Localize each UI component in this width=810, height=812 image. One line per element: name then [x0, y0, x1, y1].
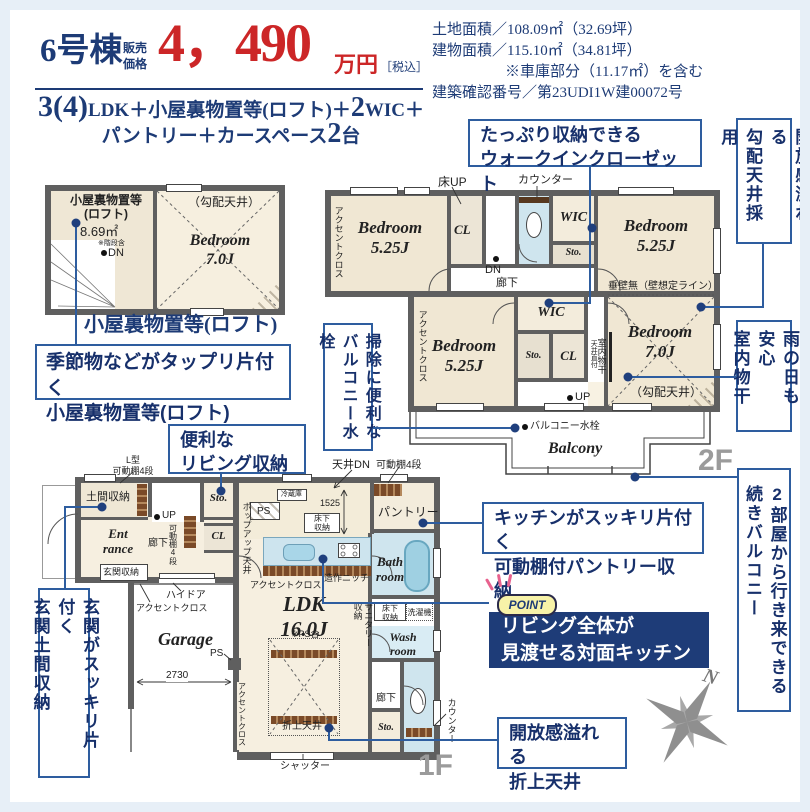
f2-stairs-dn	[486, 196, 515, 264]
f2-bedroom-tr-label: Bedroom 5.25J	[610, 216, 702, 256]
f1-hall1-label: 廊下	[148, 538, 168, 550]
spark-icon-1	[485, 578, 494, 591]
loft-wall-right	[279, 185, 285, 315]
f1-tenjo-dn-label: 天井DN	[332, 459, 370, 472]
f1-shelf4-side-label: 可動棚4段	[168, 524, 177, 568]
f1-cl-label: CL	[204, 530, 233, 543]
f1-dim2730-label: 2730	[166, 670, 188, 682]
f1-pantry-label: パントリー	[378, 505, 439, 519]
callout-loft: 季節物などがタップリ片付く 小屋裏物置等(ロフト)	[35, 344, 291, 400]
point-box: リビング全体が 見渡せる対面キッチン	[489, 612, 709, 668]
f1-wash-label: Wash room	[380, 630, 426, 658]
loft-window-top	[166, 184, 202, 192]
f1-p8	[370, 529, 434, 533]
f1-toilet-counter	[406, 728, 432, 737]
callout-tap: 掃除に便利な バルコニー水栓	[323, 323, 373, 451]
f2-p12	[518, 378, 588, 382]
callout-pantry: キッチンがスッキリ片付く 可動棚付パントリー収納	[482, 502, 704, 554]
leader-balcony2-h	[635, 476, 737, 478]
f1-dim1525-label: 1525	[320, 498, 340, 509]
price-tax: ［税込］	[380, 60, 428, 74]
f2-monohoshi-label: 室内物干	[596, 338, 607, 388]
f2-p3	[515, 196, 519, 266]
site-info-line2: 建物面積／115.10㎡（34.81坪）	[432, 43, 641, 61]
f1-wall-left	[75, 477, 81, 583]
f1-ps2-box	[228, 658, 241, 670]
leader-dot-loft	[72, 219, 81, 228]
f2-floor-up-label: 床UP	[438, 175, 467, 189]
f1-shelf4-top-label: 可動棚4段	[376, 460, 422, 472]
callout-balcony2: 2部屋から行き来できる 続きバルコニー	[737, 468, 791, 712]
loft-storage-label: 小屋裏物置等 (ロフト)	[58, 193, 154, 221]
f1-sanitary-label: サニタリー 収納	[352, 602, 373, 660]
f2-bedroom-tl-label: Bedroom 5.25J	[344, 218, 436, 258]
f2-floor-label: 2F	[698, 443, 733, 478]
f1-p13	[372, 708, 402, 712]
building-number: 6号棟	[40, 32, 123, 71]
loft-sloped-ceiling-label: （勾配天井）	[188, 195, 260, 209]
f1-oriage-label: 折上天井	[282, 721, 322, 733]
f2-toilet-bowl	[526, 212, 542, 238]
f2-window3	[618, 187, 674, 195]
f1-hidoor-label: ハイドア	[166, 590, 206, 602]
f2-toilet-counter	[519, 197, 549, 203]
loft-stairs-fan	[51, 240, 75, 309]
f1-shutter-window	[270, 752, 334, 760]
f1-up-marker	[154, 514, 160, 520]
leader-sloped-v	[762, 244, 764, 308]
f2-sto1-label: Sto.	[553, 247, 594, 259]
f1-p6	[204, 550, 233, 553]
callout-oriage: 開放感溢れる 折上天井	[497, 717, 627, 769]
f1-side-shelf	[184, 516, 196, 548]
loft-dn-marker	[101, 250, 107, 256]
f2-counter-label: カウンター	[518, 174, 573, 187]
f2-sloped-ceiling-label: （勾配天井）	[630, 385, 702, 399]
f1-ps1-label: PS	[257, 506, 270, 518]
f1-wall-garage-left	[128, 583, 134, 709]
f2-p5	[594, 196, 598, 291]
f2-p7	[553, 241, 594, 245]
loft-wall-top	[45, 185, 285, 191]
f1-window3	[380, 474, 408, 482]
loft-caption: 小屋裏物置等(ロフト)	[84, 314, 277, 338]
price-unit: 万円	[334, 52, 378, 78]
f2-wall-left-bot	[408, 291, 414, 412]
f1-hidoor-leaf	[159, 573, 215, 579]
f2-wic2-label: WIC	[518, 305, 584, 322]
f1-p10	[372, 595, 434, 599]
leader-dot-oriage	[325, 724, 334, 733]
f2-dn-marker	[493, 256, 499, 262]
f1-washer-label: 洗濯機	[406, 608, 433, 617]
callout-living-storage: 便利な リビング収納	[168, 424, 306, 474]
plan-line2: パントリー＋カースペース2台	[36, 118, 426, 150]
f2-window1	[350, 187, 398, 195]
f2-window6	[436, 403, 484, 411]
f2-up-label: UP	[575, 391, 590, 404]
leader-dot-point	[319, 555, 328, 564]
f1-garage-label: Garage	[158, 629, 213, 650]
f2-cl1-label: CL	[454, 222, 471, 237]
f1-window6	[433, 700, 441, 726]
plan-mid3: パントリー＋カースペース	[102, 121, 328, 148]
f2-p1	[447, 196, 451, 291]
f1-oriage-wood-top	[271, 650, 337, 658]
leader-genkan-v	[64, 506, 66, 588]
f1-underfloor2-label: 床下 収納	[374, 604, 406, 623]
f2-p6	[451, 264, 598, 268]
f1-sto2-label: Sto.	[372, 722, 400, 734]
f2-bedroom-br-label: Bedroom 7.0J	[614, 322, 706, 362]
f1-window4	[433, 548, 441, 578]
f2-cl2-label: CL	[553, 348, 584, 363]
loft-storage-area: 8.69㎡	[80, 224, 118, 239]
f2-tap-label: バルコニー水栓	[530, 421, 600, 433]
f1-garage-top-line	[134, 583, 233, 585]
f1-underfloor1-box: 床下 収納	[304, 513, 340, 533]
leader-wic-h	[549, 302, 591, 304]
f2-dn-label: DN	[485, 264, 501, 277]
callout-genkan: 玄関がスッキリ片付く 玄関土間収納	[38, 588, 90, 778]
f1-p5	[204, 523, 233, 526]
compass-rose-icon	[623, 658, 751, 786]
f1-p2	[81, 517, 148, 520]
leader-dot-wic1	[588, 224, 597, 233]
f1-ps-incl-label: ※PS含	[291, 629, 320, 640]
f1-accent2-label: アクセントクロス	[250, 580, 322, 591]
f2-up-marker	[567, 395, 573, 401]
leader-tap-h	[373, 427, 515, 429]
callout-wic: たっぷり収納できる ウォークインクローゼット	[468, 119, 702, 167]
f2-window7	[544, 403, 584, 411]
leader-genkan-h	[64, 506, 102, 508]
f2-monohoshi-pole	[609, 332, 612, 382]
leader-dot-living	[217, 487, 226, 496]
f1-p4	[204, 517, 233, 520]
f1-doma-label: 土間収納	[86, 491, 130, 504]
f1-floor-label: 1F	[418, 748, 453, 783]
f2-tap-marker	[522, 424, 528, 430]
site-info-line3: ※車庫部分（11.17㎡）を含む	[505, 64, 703, 82]
f1-pantry-shelf	[374, 484, 402, 496]
f2-wall-botleft	[325, 291, 414, 297]
f1-accent3-label: アクセントクロス	[237, 682, 246, 750]
callout-sloped-ceiling: 開放感溢れる 勾配天井採用	[736, 118, 792, 244]
f2-window2	[404, 187, 430, 195]
f2-p9	[584, 297, 588, 382]
compass-n-label: N	[700, 664, 721, 691]
leader-sloped-h	[701, 306, 764, 308]
leader-monohoshi-h	[628, 376, 736, 378]
f2-wall-left-top	[325, 190, 331, 297]
f1-hall2-label: 廊下	[376, 693, 396, 705]
f1-ps2-label: PS	[210, 648, 223, 660]
f2-hall-label: 廊下	[496, 277, 518, 290]
f1-up-label: UP	[162, 510, 176, 522]
price-label: 販売 価格	[123, 41, 147, 72]
f2-tarekabe-label: 垂壁無（壁想定ライン）	[608, 281, 718, 293]
leader-point-v	[322, 559, 324, 604]
f1-entrance-label: Ent rance	[92, 526, 144, 557]
leader-dot-wic2	[545, 299, 554, 308]
leader-oriage-h	[328, 739, 497, 741]
f1-p1	[148, 483, 152, 517]
loft-wall-left	[45, 185, 51, 315]
f1-popup-label: ポップアップ天井	[241, 502, 252, 588]
f2-window8	[612, 403, 652, 411]
leader-dot-genkan	[98, 503, 107, 512]
f2-balcony-label: Balcony	[548, 440, 602, 459]
f1-doma-shelf	[137, 484, 147, 516]
f2-hall-top	[451, 268, 596, 291]
site-info-line1: 土地面積／108.09㎡（32.69坪）	[432, 22, 642, 40]
f1-window5	[433, 630, 441, 652]
loft-bedroom-label: Bedroom 7.0J	[180, 232, 260, 270]
f1-fridge-label: 冷蔵庫	[281, 491, 302, 499]
f1-genkan-sto-label: 玄関収納	[103, 567, 139, 578]
f2-sto2-label: Sto.	[518, 350, 549, 362]
leader-dot-tap	[511, 424, 520, 433]
callout-monohoshi: 雨の日も安心 室内物干	[736, 320, 792, 432]
flyer-canvas: 6号棟 販売 価格 4，490 万円 ［税込］ 3(4)LDK＋小屋裏物置等(ロ…	[0, 0, 810, 812]
plan-big3: 2	[327, 118, 341, 150]
leader-pantry-h	[424, 522, 482, 524]
leader-dot-balcony2	[631, 473, 640, 482]
f1-wall-bottom	[237, 752, 440, 760]
point-badge: POINT	[497, 594, 557, 616]
f2-p2	[482, 196, 486, 266]
loft-dn-label: DN	[108, 247, 124, 260]
f1-toilet-bowl	[410, 688, 426, 714]
leader-dot-sloped	[697, 303, 706, 312]
f1-sink	[283, 544, 315, 561]
f1-shutter-label: シャッター	[280, 761, 330, 773]
f1-niche-label: 造作ニッチ	[324, 573, 369, 584]
f1-garage-left-line	[130, 709, 132, 752]
plan-mid4: 台	[341, 121, 360, 148]
f2-window4	[713, 228, 721, 274]
leader-point-h	[322, 602, 489, 604]
f1-counter-label: カウンター	[446, 698, 457, 744]
leader-dot-monohoshi	[624, 373, 633, 382]
f2-bedroom-bl-label: Bedroom 5.25J	[418, 336, 510, 376]
leader-loft	[75, 223, 77, 344]
price-value: 4，490	[158, 12, 310, 76]
f1-l-shelf-label: L型 可動棚4段	[96, 455, 170, 476]
leader-wic-v	[589, 167, 591, 303]
f1-bath-label: Bath room	[372, 554, 408, 585]
f2-accent1-label: アクセントクロス	[333, 206, 344, 290]
f1-stove	[338, 543, 360, 558]
f1-accent1-label: アクセントクロス	[136, 603, 208, 614]
site-info-line4: 建築確認番号／第23UDI1W建00072号	[432, 85, 683, 103]
leader-dot-pantry	[419, 519, 428, 528]
f2-window5	[713, 324, 721, 370]
